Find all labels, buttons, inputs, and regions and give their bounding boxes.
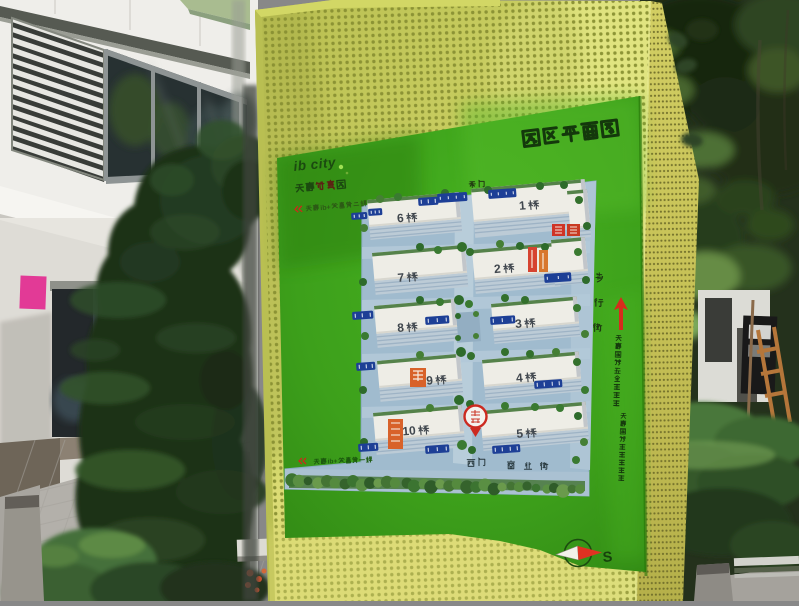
svg-text:S: S: [602, 549, 613, 566]
svg-text:ib+: ib+: [320, 204, 331, 212]
svg-text:10: 10: [402, 423, 417, 438]
svg-text:ib+: ib+: [328, 458, 338, 465]
